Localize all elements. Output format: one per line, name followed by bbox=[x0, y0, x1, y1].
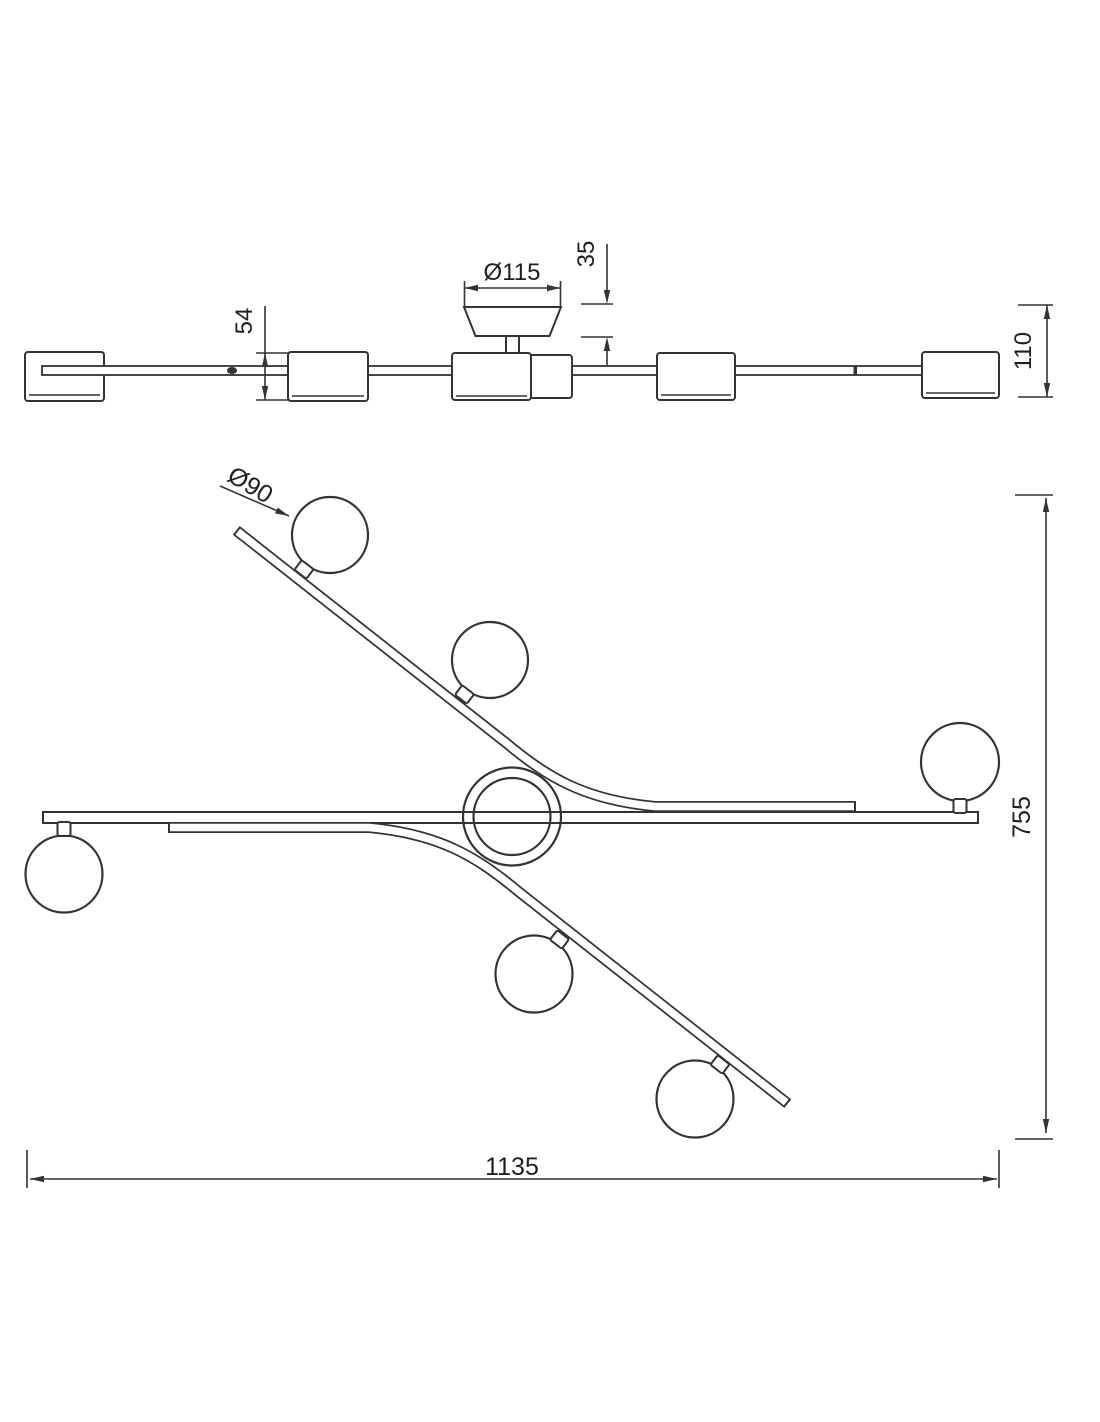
arrow-down-icon bbox=[262, 386, 268, 400]
arrow-down-icon bbox=[604, 290, 610, 304]
dimension-overall-depth: 755 bbox=[1008, 495, 1053, 1139]
globe-4 bbox=[26, 836, 103, 913]
arrow-leader-icon bbox=[275, 508, 289, 516]
arrow-up-icon bbox=[1044, 305, 1050, 319]
dim-label-globe-diameter: Ø90 bbox=[223, 461, 278, 509]
dim-label-canopy-height: 35 bbox=[573, 241, 600, 268]
straight-rod bbox=[43, 812, 978, 823]
dimension-shade-height: 54 bbox=[231, 306, 290, 400]
dim-label-total-height: 110 bbox=[1010, 332, 1037, 370]
arrow-right-icon bbox=[983, 1176, 997, 1182]
light-fixture-drawing: Ø115 35 54 110 bbox=[0, 0, 1100, 1422]
ceiling-canopy bbox=[464, 307, 561, 336]
plan-view bbox=[26, 497, 1000, 1138]
side-elevation-view bbox=[25, 307, 999, 401]
arrow-up-icon bbox=[1043, 498, 1049, 512]
dim-label-shade-height: 54 bbox=[231, 308, 258, 335]
dim-label-canopy-diameter: Ø115 bbox=[484, 259, 541, 286]
shade-right bbox=[922, 352, 999, 398]
dimension-canopy-height: 35 bbox=[573, 241, 613, 365]
arrow-left-icon bbox=[465, 285, 479, 291]
dim-label-overall-depth: 755 bbox=[1008, 796, 1036, 838]
arrow-down-icon bbox=[1044, 383, 1050, 397]
arrow-right-icon bbox=[547, 285, 561, 291]
holder-3 bbox=[954, 799, 967, 813]
shade-4 bbox=[657, 353, 735, 400]
dimension-globe-diameter: Ø90 bbox=[220, 461, 289, 516]
technical-drawing-page: Ø115 35 54 110 bbox=[0, 0, 1100, 1422]
shade-center bbox=[452, 353, 531, 400]
shade-left bbox=[25, 352, 104, 401]
shade-2 bbox=[288, 352, 368, 401]
arrow-up-icon bbox=[262, 353, 268, 367]
arrow-left-icon bbox=[30, 1176, 44, 1182]
bar-joint-right bbox=[854, 366, 858, 376]
holder-4 bbox=[58, 822, 71, 836]
dimension-overall-width: 1135 bbox=[27, 1150, 999, 1188]
bar-joint-left bbox=[227, 367, 237, 374]
dim-lines bbox=[256, 306, 290, 400]
arrow-down-icon bbox=[1043, 1119, 1049, 1133]
globe-3 bbox=[921, 723, 999, 801]
arrow-up-icon bbox=[604, 337, 610, 351]
dim-label-overall-width: 1135 bbox=[485, 1153, 539, 1181]
dimension-total-height: 110 bbox=[1010, 305, 1053, 397]
shade-center-rear bbox=[528, 355, 572, 398]
dimension-canopy-diameter: Ø115 bbox=[465, 259, 561, 306]
